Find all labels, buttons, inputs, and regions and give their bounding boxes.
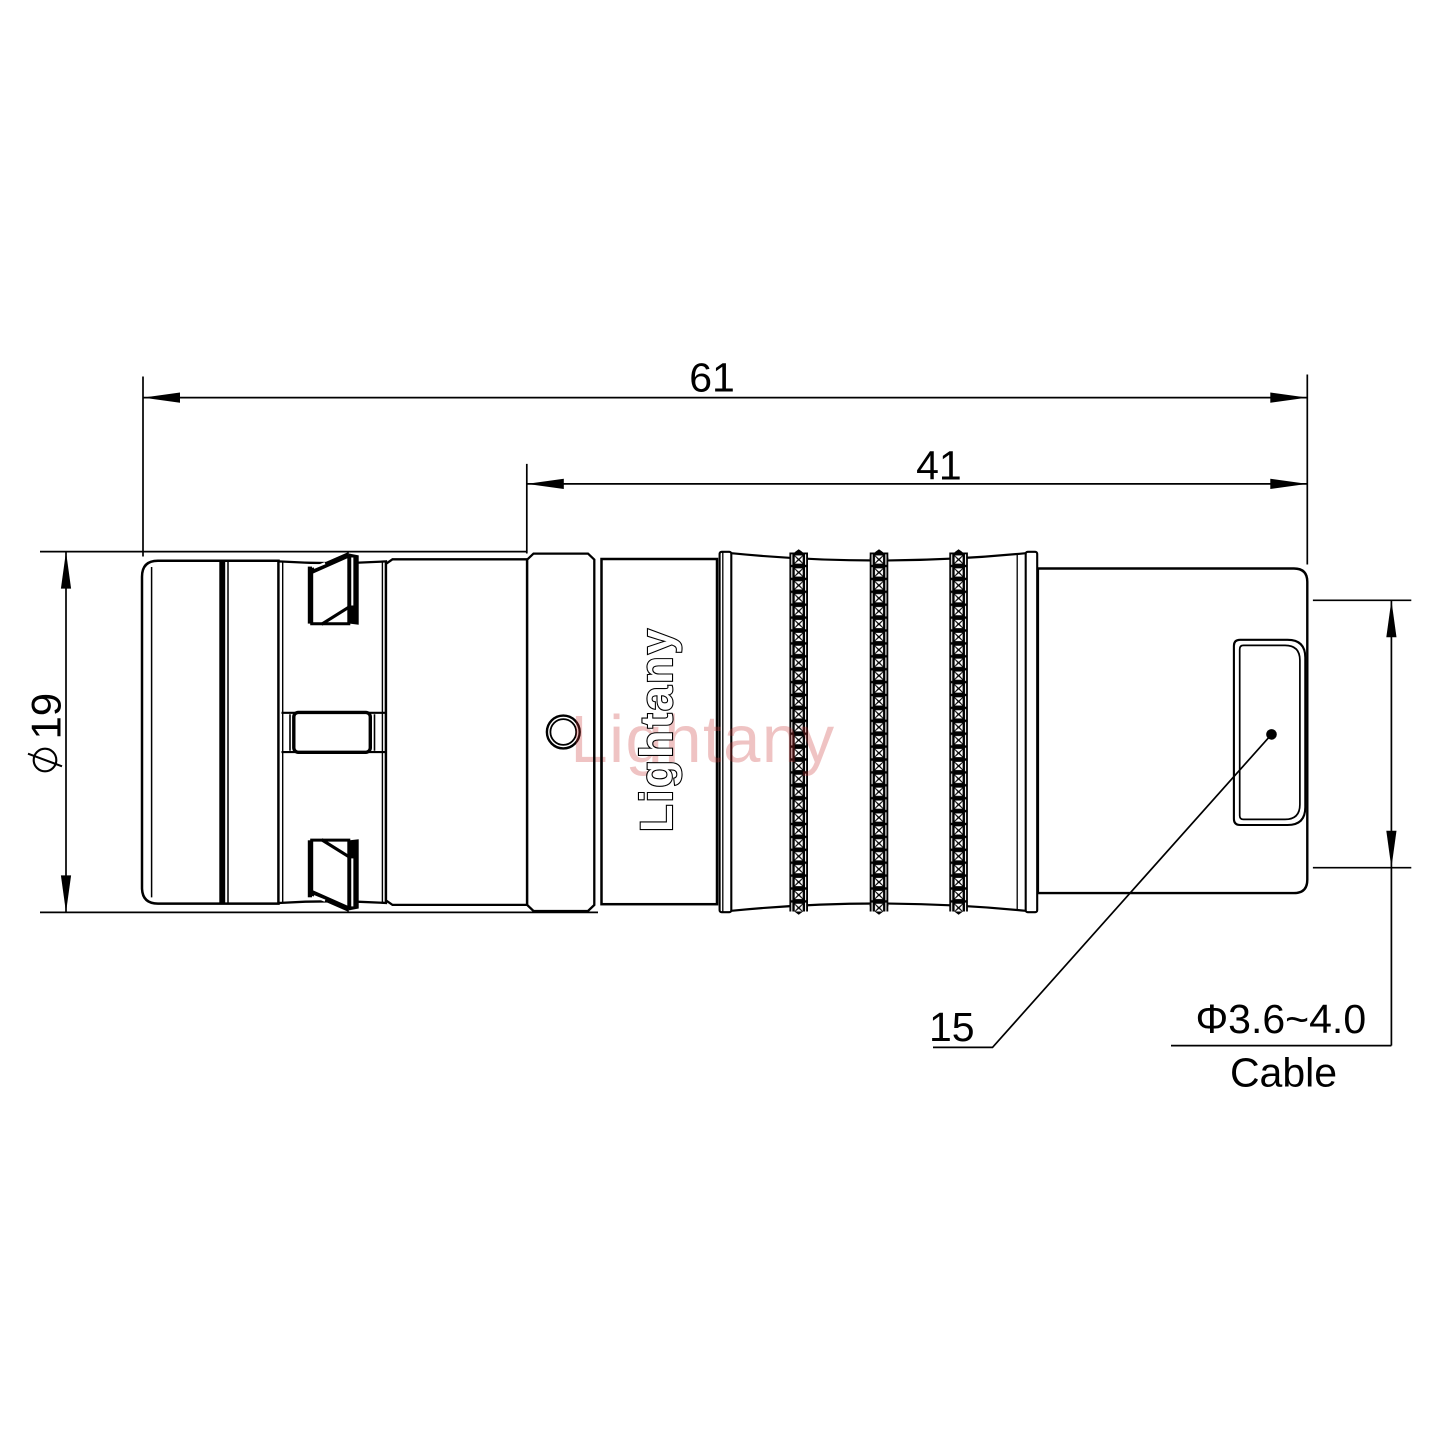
svg-text:15: 15 <box>929 1004 975 1050</box>
svg-text:61: 61 <box>689 354 735 400</box>
svg-text:Cable: Cable <box>1230 1050 1337 1096</box>
svg-text:19: 19 <box>23 693 70 740</box>
svg-text:Φ3.6~4.0: Φ3.6~4.0 <box>1195 996 1366 1042</box>
svg-text:Lightany: Lightany <box>631 627 682 832</box>
svg-text:Lightany: Lightany <box>570 702 835 777</box>
svg-text:41: 41 <box>916 443 962 489</box>
